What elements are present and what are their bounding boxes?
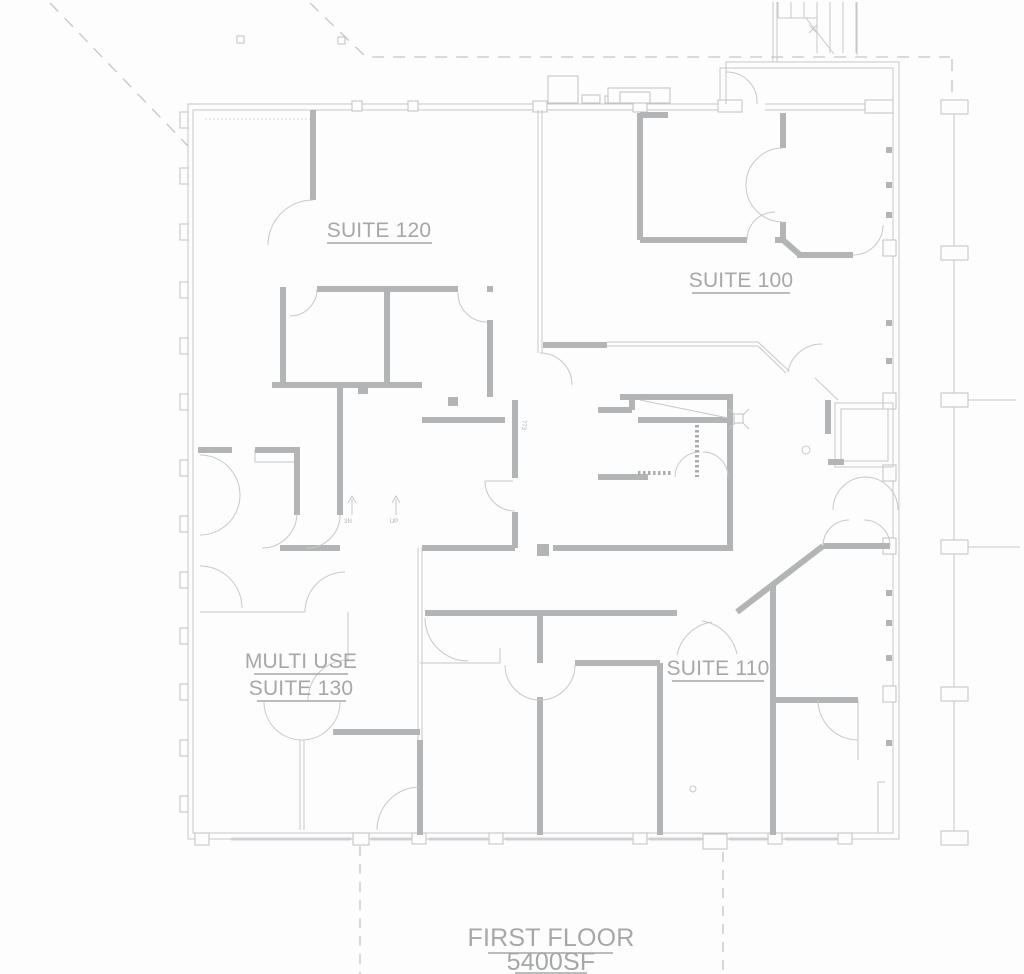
interior-thin-walls [200, 68, 893, 833]
up-arrow [392, 496, 400, 515]
corridor-tag: 773 [520, 420, 526, 431]
suite-120-label: SUITE 120 [327, 219, 432, 242]
multi-use-label-line1: MULTI USE [245, 650, 357, 673]
floor-plan-drawing: SUITE 120 SUITE 100 MULTI USE SUITE 130 … [0, 0, 1024, 974]
column-grid [941, 100, 1020, 845]
arrow-right-tag: UP [390, 519, 398, 525]
suite-110-label: SUITE 110 [667, 657, 770, 680]
multi-use-label-line2: SUITE 130 [249, 677, 354, 700]
stair [773, 2, 857, 62]
floor-drain-symbol [690, 786, 696, 792]
arrow-left-tag: 3N [344, 519, 352, 525]
suite-100-label: SUITE 100 [689, 269, 794, 292]
interior-walls [198, 110, 890, 835]
sheet-title: FIRST FLOOR 5400SF [467, 924, 634, 974]
floor-drain-symbol [802, 446, 810, 454]
up-arrow [348, 496, 356, 515]
door-swings [200, 72, 898, 830]
floor-plan-sheet: SUITE 120 SUITE 100 MULTI USE SUITE 130 … [0, 0, 1024, 974]
title-line2: 5400SF [507, 948, 596, 974]
